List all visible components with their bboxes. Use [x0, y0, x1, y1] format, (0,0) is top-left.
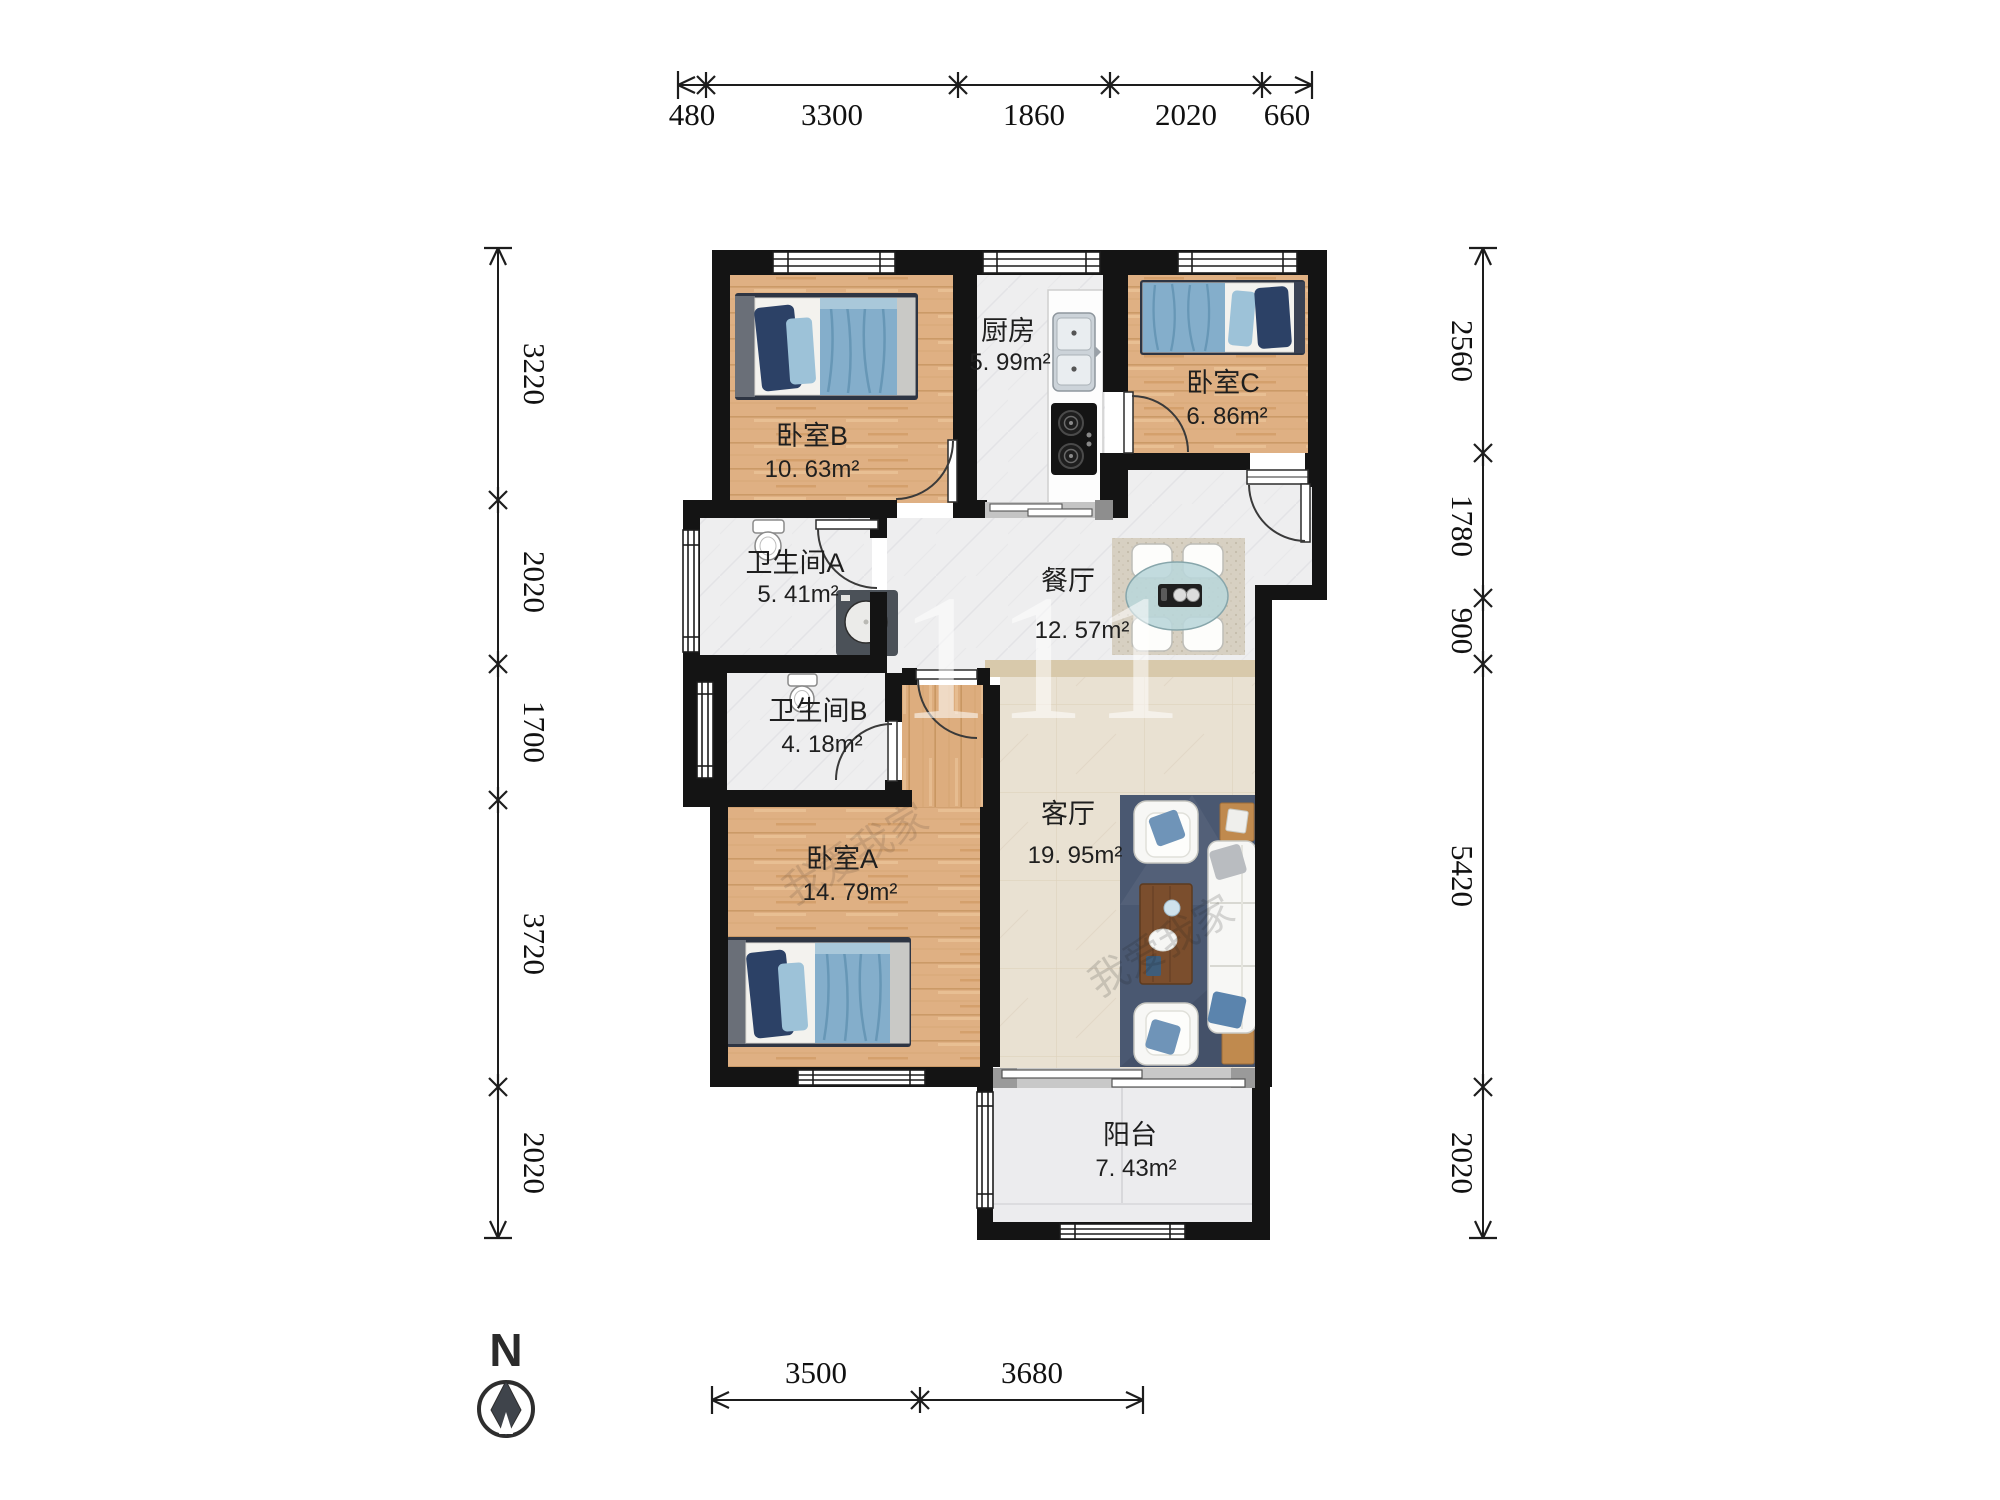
- dim-bottom-0: 3500: [785, 1355, 847, 1390]
- room-area: 5. 41m²: [757, 581, 838, 608]
- dim-bottom-1: 3680: [1001, 1355, 1063, 1390]
- window-balcony-bottom: [1060, 1224, 1185, 1239]
- dim-top-1: 3300: [801, 97, 863, 132]
- dimension-left: 3220 2020 1700 3720 2020: [484, 248, 552, 1238]
- dim-left-1: 2020: [517, 551, 552, 613]
- room-name: 卧室C: [1186, 368, 1260, 398]
- room-name: 卫生间A: [745, 548, 844, 578]
- dim-right-4: 2020: [1445, 1132, 1480, 1194]
- window-bedroom-c: [1178, 252, 1297, 273]
- dim-right-2: 900: [1445, 608, 1480, 655]
- room-name: 卧室A: [806, 844, 878, 874]
- kitchen-counter: [1048, 290, 1103, 503]
- dim-top-2: 1860: [1003, 97, 1065, 132]
- room-name: 阳台: [1103, 1120, 1157, 1150]
- dim-left-0: 3220: [517, 343, 552, 405]
- window-kitchen: [983, 252, 1100, 273]
- room-area: 14. 79m²: [803, 879, 898, 906]
- sliding-door-balcony: [993, 1068, 1255, 1088]
- floor-plan-page: 111 我爱我家 我爱我家 卧室B 10. 63m² 厨房 5. 99m² 卧室…: [0, 0, 2000, 1500]
- kitchen-stove-icon: [1051, 403, 1097, 475]
- room-name: 厨房: [981, 316, 1035, 346]
- window-bedroom-a: [798, 1070, 925, 1085]
- dimension-top: 480 3300 1860 2020 660: [669, 71, 1312, 132]
- dim-right-3: 5420: [1445, 845, 1480, 907]
- window-balcony-left: [977, 1092, 993, 1208]
- armchair-top: [1134, 801, 1198, 863]
- room-area: 12. 57m²: [1035, 617, 1130, 644]
- dim-top-3: 2020: [1155, 97, 1217, 132]
- north-compass-icon: N: [479, 1324, 533, 1437]
- washing-machine-icon: [836, 590, 898, 656]
- window-bathroom-a: [683, 530, 699, 652]
- compass-label: N: [489, 1324, 522, 1376]
- room-name: 卫生间B: [768, 696, 867, 726]
- dimension-bottom: 3500 3680: [712, 1355, 1143, 1414]
- dim-top-0: 480: [669, 97, 716, 132]
- dim-left-4: 2020: [517, 1132, 552, 1194]
- window-bedroom-b: [773, 252, 895, 273]
- dim-left-3: 3720: [517, 913, 552, 975]
- room-area: 19. 95m²: [1028, 842, 1123, 869]
- dim-right-1: 1780: [1445, 495, 1480, 557]
- kitchen-sink-icon: [1053, 313, 1101, 391]
- room-name: 客厅: [1041, 799, 1095, 829]
- bed-bedroom-c: [1140, 280, 1305, 355]
- sliding-door-kitchen: [985, 500, 1113, 520]
- room-name: 餐厅: [1041, 566, 1095, 596]
- armchair-bottom: [1134, 1003, 1198, 1065]
- room-area: 5. 99m²: [969, 349, 1050, 376]
- room-area: 6. 86m²: [1186, 403, 1267, 430]
- dim-right-0: 2560: [1445, 320, 1480, 382]
- room-area: 7. 43m²: [1095, 1155, 1176, 1182]
- window-bathroom-b: [697, 682, 713, 778]
- room-area: 10. 63m²: [765, 456, 860, 483]
- dimension-right: 2560 1780 900 5420 2020: [1445, 248, 1497, 1238]
- floor-plan-image: 111 我爱我家 我爱我家 卧室B 10. 63m² 厨房 5. 99m² 卧室…: [0, 0, 2000, 1500]
- room-name: 卧室B: [776, 421, 848, 451]
- bed-bedroom-a: [726, 937, 911, 1047]
- bed-bedroom-b: [735, 293, 918, 400]
- room-area: 4. 18m²: [781, 731, 862, 758]
- dim-top-4: 660: [1264, 97, 1311, 132]
- dim-left-2: 1700: [517, 701, 552, 763]
